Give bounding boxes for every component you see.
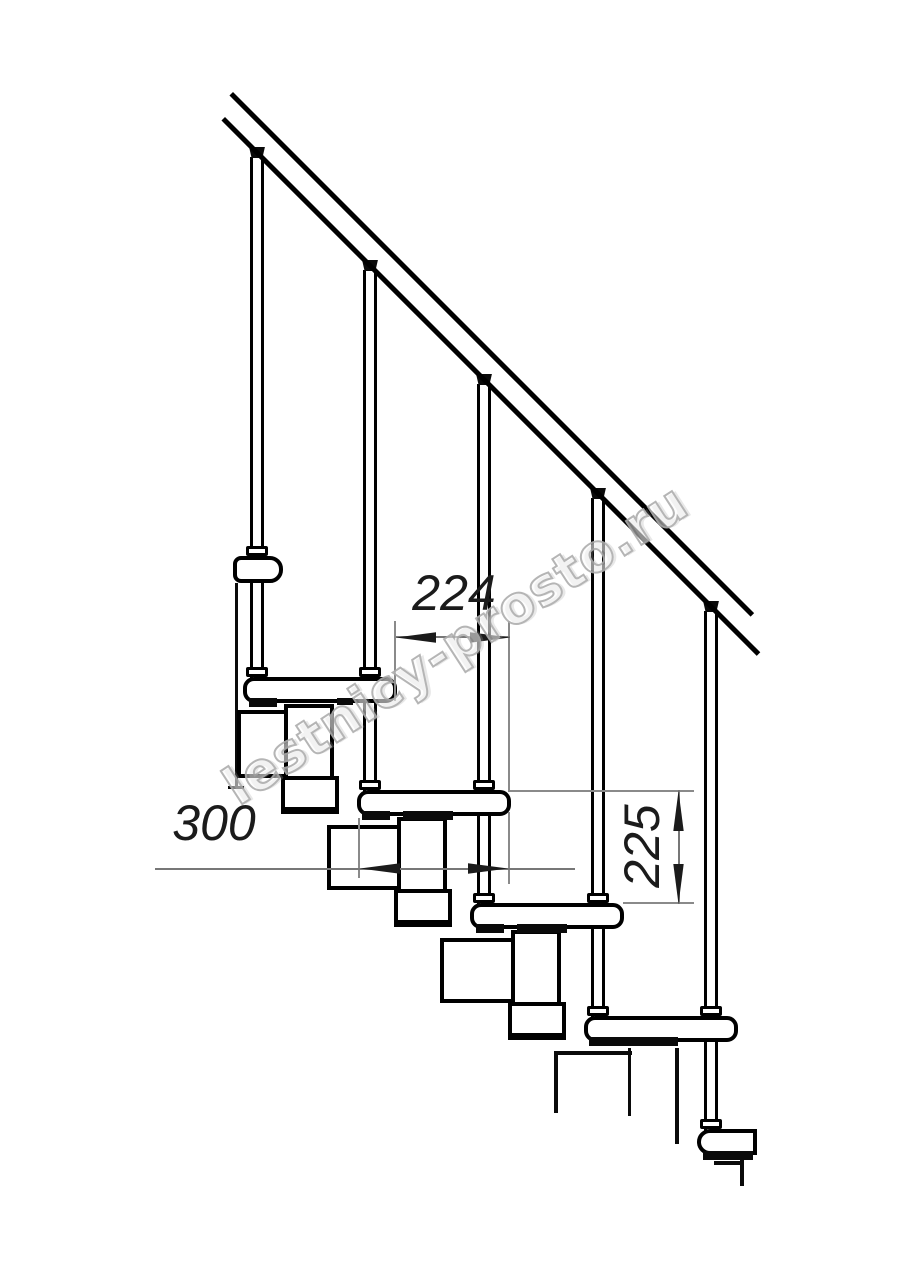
module-column-2-flange [403, 811, 453, 820]
technical-drawing-canvas: 224 300 225 lestnicy-prosto.ru [0, 0, 914, 1280]
module-column-4-left-line [628, 1048, 631, 1116]
tread-4-connector-tab [589, 1037, 623, 1046]
module-column-3-lower [508, 1002, 566, 1040]
module-bridge-3-top-line [554, 1051, 632, 1055]
dim-225-arrow-up [672, 791, 685, 831]
module-column-2-lower [394, 889, 452, 927]
bottom-step-cut-hline [714, 1161, 743, 1165]
module-bridge-1 [327, 825, 404, 890]
baluster-3-collar-upper [473, 780, 495, 790]
tread-5-connector-tab [703, 1151, 753, 1160]
baluster-2-collar-lower [359, 780, 381, 790]
dim-225-label: 225 [619, 788, 665, 904]
baluster-5-collar-upper [700, 1006, 722, 1016]
baluster-3-collar-lower [473, 893, 495, 903]
dim-224-ext-line-right-b [508, 812, 510, 884]
module-column-4-flange [623, 1037, 678, 1046]
module-bridge-3-left-line [554, 1051, 558, 1113]
baluster-5-collar-lower [700, 1119, 722, 1129]
baluster-1-collar-upper [246, 546, 268, 556]
module-column-4-right-line [675, 1048, 679, 1144]
dim-225-ext-line-top [508, 790, 694, 792]
module-column-3-flange [517, 924, 567, 933]
baluster-4-collar-upper [587, 893, 609, 903]
baluster-5-post [704, 611, 718, 1133]
bottom-step-cut-vline [740, 1158, 744, 1186]
dim-225-arrow-down [672, 864, 685, 904]
baluster-4-collar-lower [587, 1006, 609, 1016]
baluster-1-collar-lower [246, 667, 268, 677]
tread-3-connector-tab [476, 924, 504, 933]
tread-1-connector-tab [249, 698, 277, 707]
baluster-1-post [250, 157, 264, 681]
module-column-3-upper [511, 930, 561, 1006]
tread-0-landing-fragment [233, 556, 283, 583]
tread-2-connector-tab [362, 811, 390, 820]
module-bridge-2 [440, 938, 517, 1003]
module-column-2-upper [397, 817, 447, 893]
